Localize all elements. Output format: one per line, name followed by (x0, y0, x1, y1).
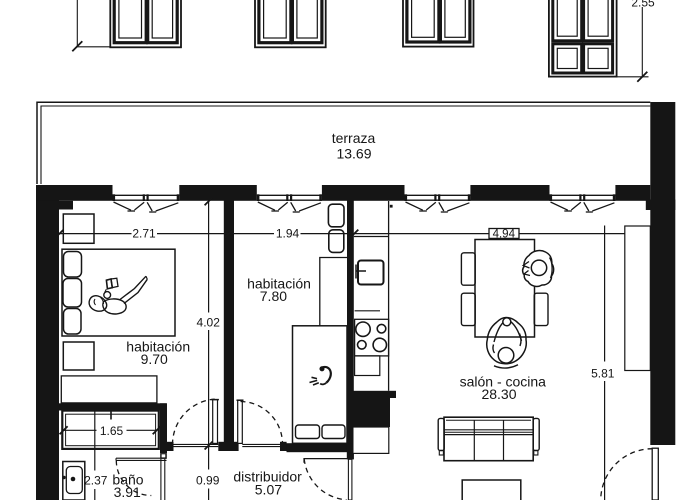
svg-text:2.55: 2.55 (631, 0, 655, 10)
svg-text:2.37: 2.37 (84, 473, 108, 487)
svg-text:terraza: terraza (332, 130, 376, 146)
svg-text:4.02: 4.02 (197, 316, 221, 330)
svg-text:13.69: 13.69 (336, 146, 371, 162)
svg-text:4.94: 4.94 (493, 228, 516, 240)
svg-text:5.07: 5.07 (255, 481, 282, 497)
svg-text:5.81: 5.81 (591, 366, 615, 380)
svg-text:0.99: 0.99 (196, 473, 220, 487)
svg-text:1.94: 1.94 (276, 226, 300, 240)
svg-text:28.30: 28.30 (481, 386, 516, 402)
svg-text:9.70: 9.70 (141, 351, 168, 367)
svg-text:2.71: 2.71 (132, 226, 156, 240)
svg-text:7.80: 7.80 (260, 288, 287, 304)
svg-text:1.65: 1.65 (100, 424, 124, 438)
